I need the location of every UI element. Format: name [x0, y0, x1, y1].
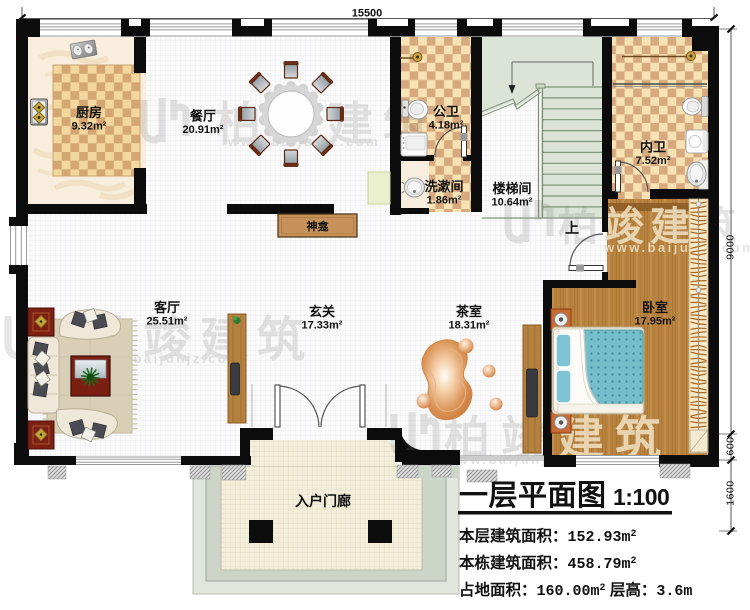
svg-text:10.64m²: 10.64m²: [492, 197, 533, 209]
svg-text:本层建筑面积：152.93m2: 本层建筑面积：152.93m2: [459, 526, 637, 546]
svg-text:占地面积：160.00m2 层高：3.6m: 占地面积：160.00m2 层高：3.6m: [459, 580, 692, 600]
svg-text:洗漱间: 洗漱间: [424, 179, 463, 194]
svg-text:9000: 9000: [725, 234, 737, 259]
svg-text:15500: 15500: [352, 8, 383, 20]
svg-text:4.18m²: 4.18m²: [429, 120, 464, 132]
svg-text:神龛: 神龛: [307, 219, 330, 233]
svg-text:25.51m²: 25.51m²: [147, 316, 188, 328]
svg-text:一层平面图: 一层平面图: [459, 480, 607, 512]
svg-text:600: 600: [725, 436, 737, 455]
svg-text:卧室: 卧室: [642, 300, 668, 315]
svg-text:客厅: 客厅: [154, 300, 180, 315]
svg-text:玄关: 玄关: [309, 304, 335, 319]
svg-text:餐厅: 餐厅: [189, 109, 216, 124]
svg-text:1600: 1600: [725, 480, 737, 505]
svg-text:7.52m²: 7.52m²: [636, 155, 671, 167]
svg-text:楼梯间: 楼梯间: [492, 181, 531, 196]
svg-text:厨房: 厨房: [76, 105, 102, 120]
svg-text:17.95m²: 17.95m²: [635, 316, 676, 328]
svg-text:公卫: 公卫: [433, 104, 459, 119]
svg-text:内卫: 内卫: [640, 140, 666, 155]
svg-text:1.86m²: 1.86m²: [427, 195, 462, 207]
svg-text:1:100: 1:100: [613, 484, 669, 510]
svg-text:18.31m²: 18.31m²: [449, 320, 490, 332]
svg-text:上: 上: [565, 220, 579, 236]
svg-text:17.33m²: 17.33m²: [302, 320, 343, 332]
svg-text:筑: 筑: [257, 314, 305, 367]
svg-text:茶室: 茶室: [456, 304, 482, 319]
svg-text:20.91m²: 20.91m²: [183, 124, 224, 136]
svg-text:本栋建筑面积：458.79m2: 本栋建筑面积：458.79m2: [459, 553, 637, 573]
svg-text:入户门廊: 入户门廊: [295, 493, 351, 509]
svg-text:9.32m²: 9.32m²: [72, 121, 107, 133]
